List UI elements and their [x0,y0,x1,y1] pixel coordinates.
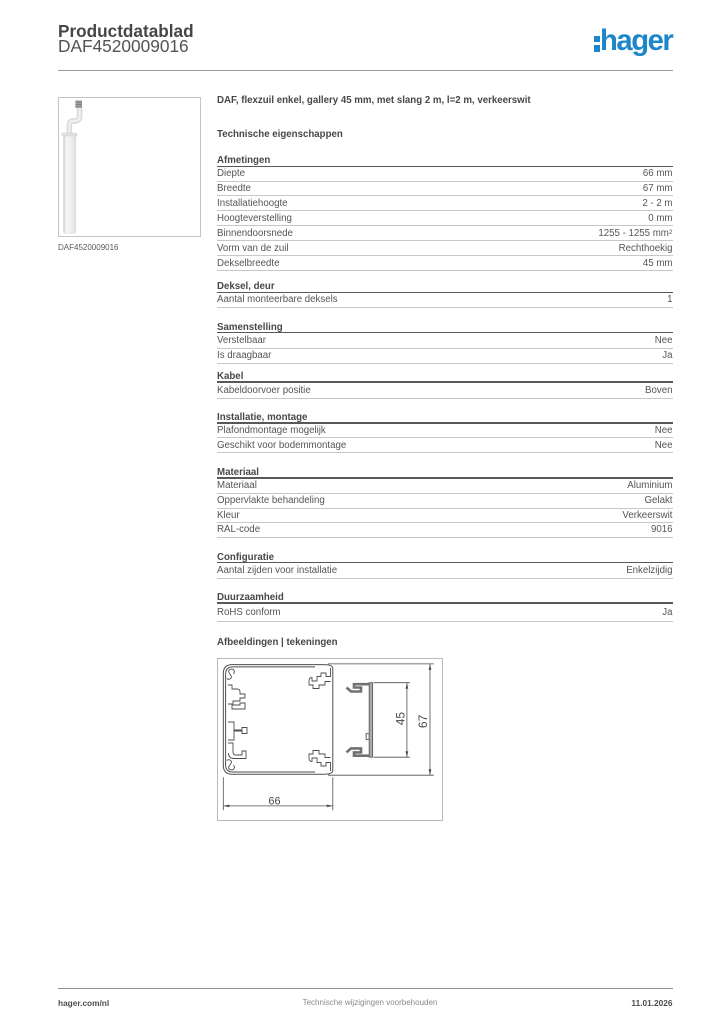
svg-text:66: 66 [268,795,280,807]
svg-text:45: 45 [393,711,407,725]
svg-text:67: 67 [416,714,430,728]
